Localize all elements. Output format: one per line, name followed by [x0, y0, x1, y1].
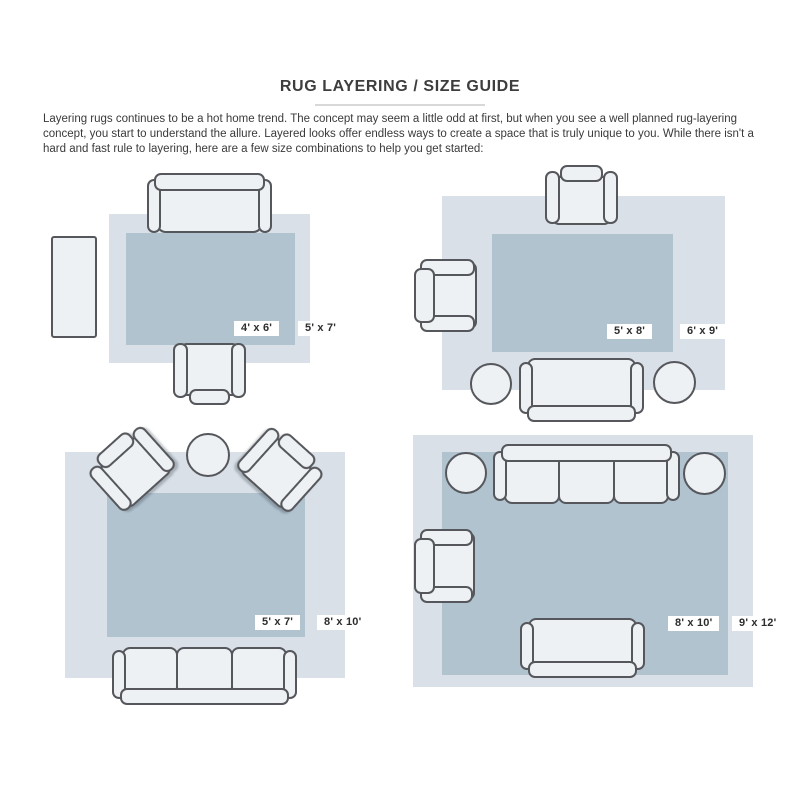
chair-arm [231, 343, 246, 398]
round-ottoman-icon [653, 361, 696, 404]
sofa-seat [527, 358, 636, 410]
sofa-cushion [176, 647, 233, 691]
sofa-cushion [613, 458, 669, 504]
round-ottoman-icon [683, 452, 726, 495]
outer-rug-size-label: 9' x 12' [732, 616, 783, 631]
sofa-cushion [504, 458, 560, 504]
armchair-icon [414, 529, 475, 603]
inner-rug-size-label: 5' x 7' [255, 615, 300, 630]
three-seat-sofa-icon [493, 444, 680, 504]
sofa-back [501, 444, 672, 462]
diagram-2: 5' x 8' 6' x 9' [400, 160, 730, 425]
sofa-icon [147, 173, 272, 233]
armchair-icon [173, 343, 246, 405]
loveseat-icon [520, 618, 645, 678]
sofa-seat [156, 186, 263, 233]
side-table-icon [51, 236, 97, 338]
armchair-icon [414, 259, 477, 332]
round-table-icon [186, 433, 230, 477]
sofa-cushion [231, 647, 287, 691]
sofa-seat [528, 618, 637, 666]
inner-rug-size-label: 4' x 6' [234, 321, 279, 336]
title-divider [315, 104, 485, 106]
sofa-cushion [122, 647, 178, 691]
page-title: RUG LAYERING / SIZE GUIDE [0, 78, 800, 96]
outer-rug-size-label: 8' x 10' [317, 615, 368, 630]
round-ottoman-icon [445, 452, 487, 494]
rug-layering-size-guide: RUG LAYERING / SIZE GUIDE Layering rugs … [0, 0, 800, 800]
sofa-back [528, 661, 637, 678]
armchair-icon [545, 165, 618, 225]
inner-rug-size-label: 8' x 10' [668, 616, 719, 631]
diagram-4: 8' x 10' 9' x 12' [400, 420, 780, 710]
chair-back [414, 268, 435, 323]
diagram-3: 5' x 7' 8' x 10' [40, 420, 380, 710]
chair-arm [545, 171, 560, 224]
round-ottoman-icon [470, 363, 512, 405]
three-seat-sofa-icon [112, 647, 297, 705]
outer-rug-size-label: 6' x 9' [680, 324, 725, 339]
sofa-cushion [558, 458, 615, 504]
loveseat-icon [519, 358, 644, 422]
sofa-back [120, 688, 289, 705]
diagram-1: 4' x 6' 5' x 7' [40, 170, 360, 410]
chair-arm [603, 171, 618, 224]
outer-rug-size-label: 5' x 7' [298, 321, 343, 336]
chair-back [189, 389, 230, 405]
sofa-back [154, 173, 265, 191]
chair-back [414, 538, 435, 594]
intro-paragraph: Layering rugs continues to be a hot home… [43, 112, 759, 157]
chair-arm [173, 343, 188, 398]
chair-back [560, 165, 603, 182]
inner-rug-size-label: 5' x 8' [607, 324, 652, 339]
